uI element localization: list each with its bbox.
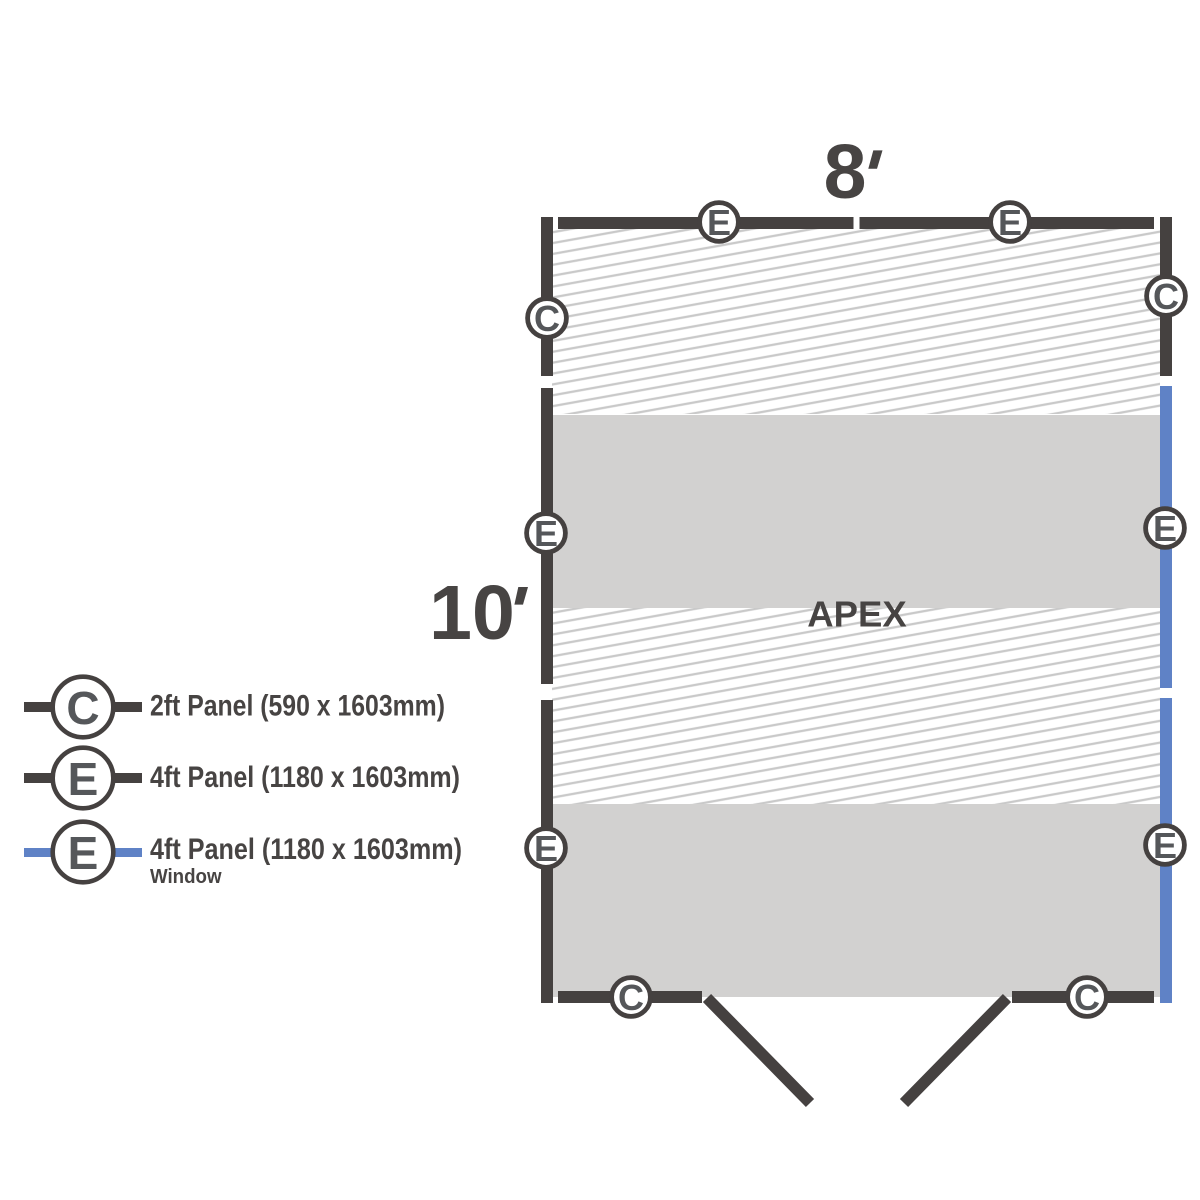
svg-text:APEX: APEX <box>807 594 907 635</box>
svg-text:E: E <box>998 202 1022 243</box>
svg-text:E: E <box>707 202 731 243</box>
svg-text:4ft Panel (1180 x 1603mm): 4ft Panel (1180 x 1603mm) <box>150 761 460 794</box>
svg-text:2ft Panel (590 x 1603mm): 2ft Panel (590 x 1603mm) <box>150 690 445 723</box>
svg-text:C: C <box>534 298 560 339</box>
svg-text:E: E <box>534 513 558 554</box>
svg-text:C: C <box>1153 276 1179 317</box>
svg-text:E: E <box>534 828 558 869</box>
svg-text:E: E <box>1153 825 1177 866</box>
svg-text:E: E <box>1153 508 1177 549</box>
svg-text:10: 10 <box>429 570 515 656</box>
svg-text:Window: Window <box>150 866 222 888</box>
svg-text:E: E <box>68 827 99 879</box>
svg-text:4ft Panel (1180 x 1603mm): 4ft Panel (1180 x 1603mm) <box>150 833 462 866</box>
svg-text:8: 8 <box>824 129 867 215</box>
svg-text:C: C <box>66 682 99 734</box>
svg-text:C: C <box>618 977 644 1018</box>
svg-text:C: C <box>1074 977 1100 1018</box>
svg-text:E: E <box>68 753 99 805</box>
